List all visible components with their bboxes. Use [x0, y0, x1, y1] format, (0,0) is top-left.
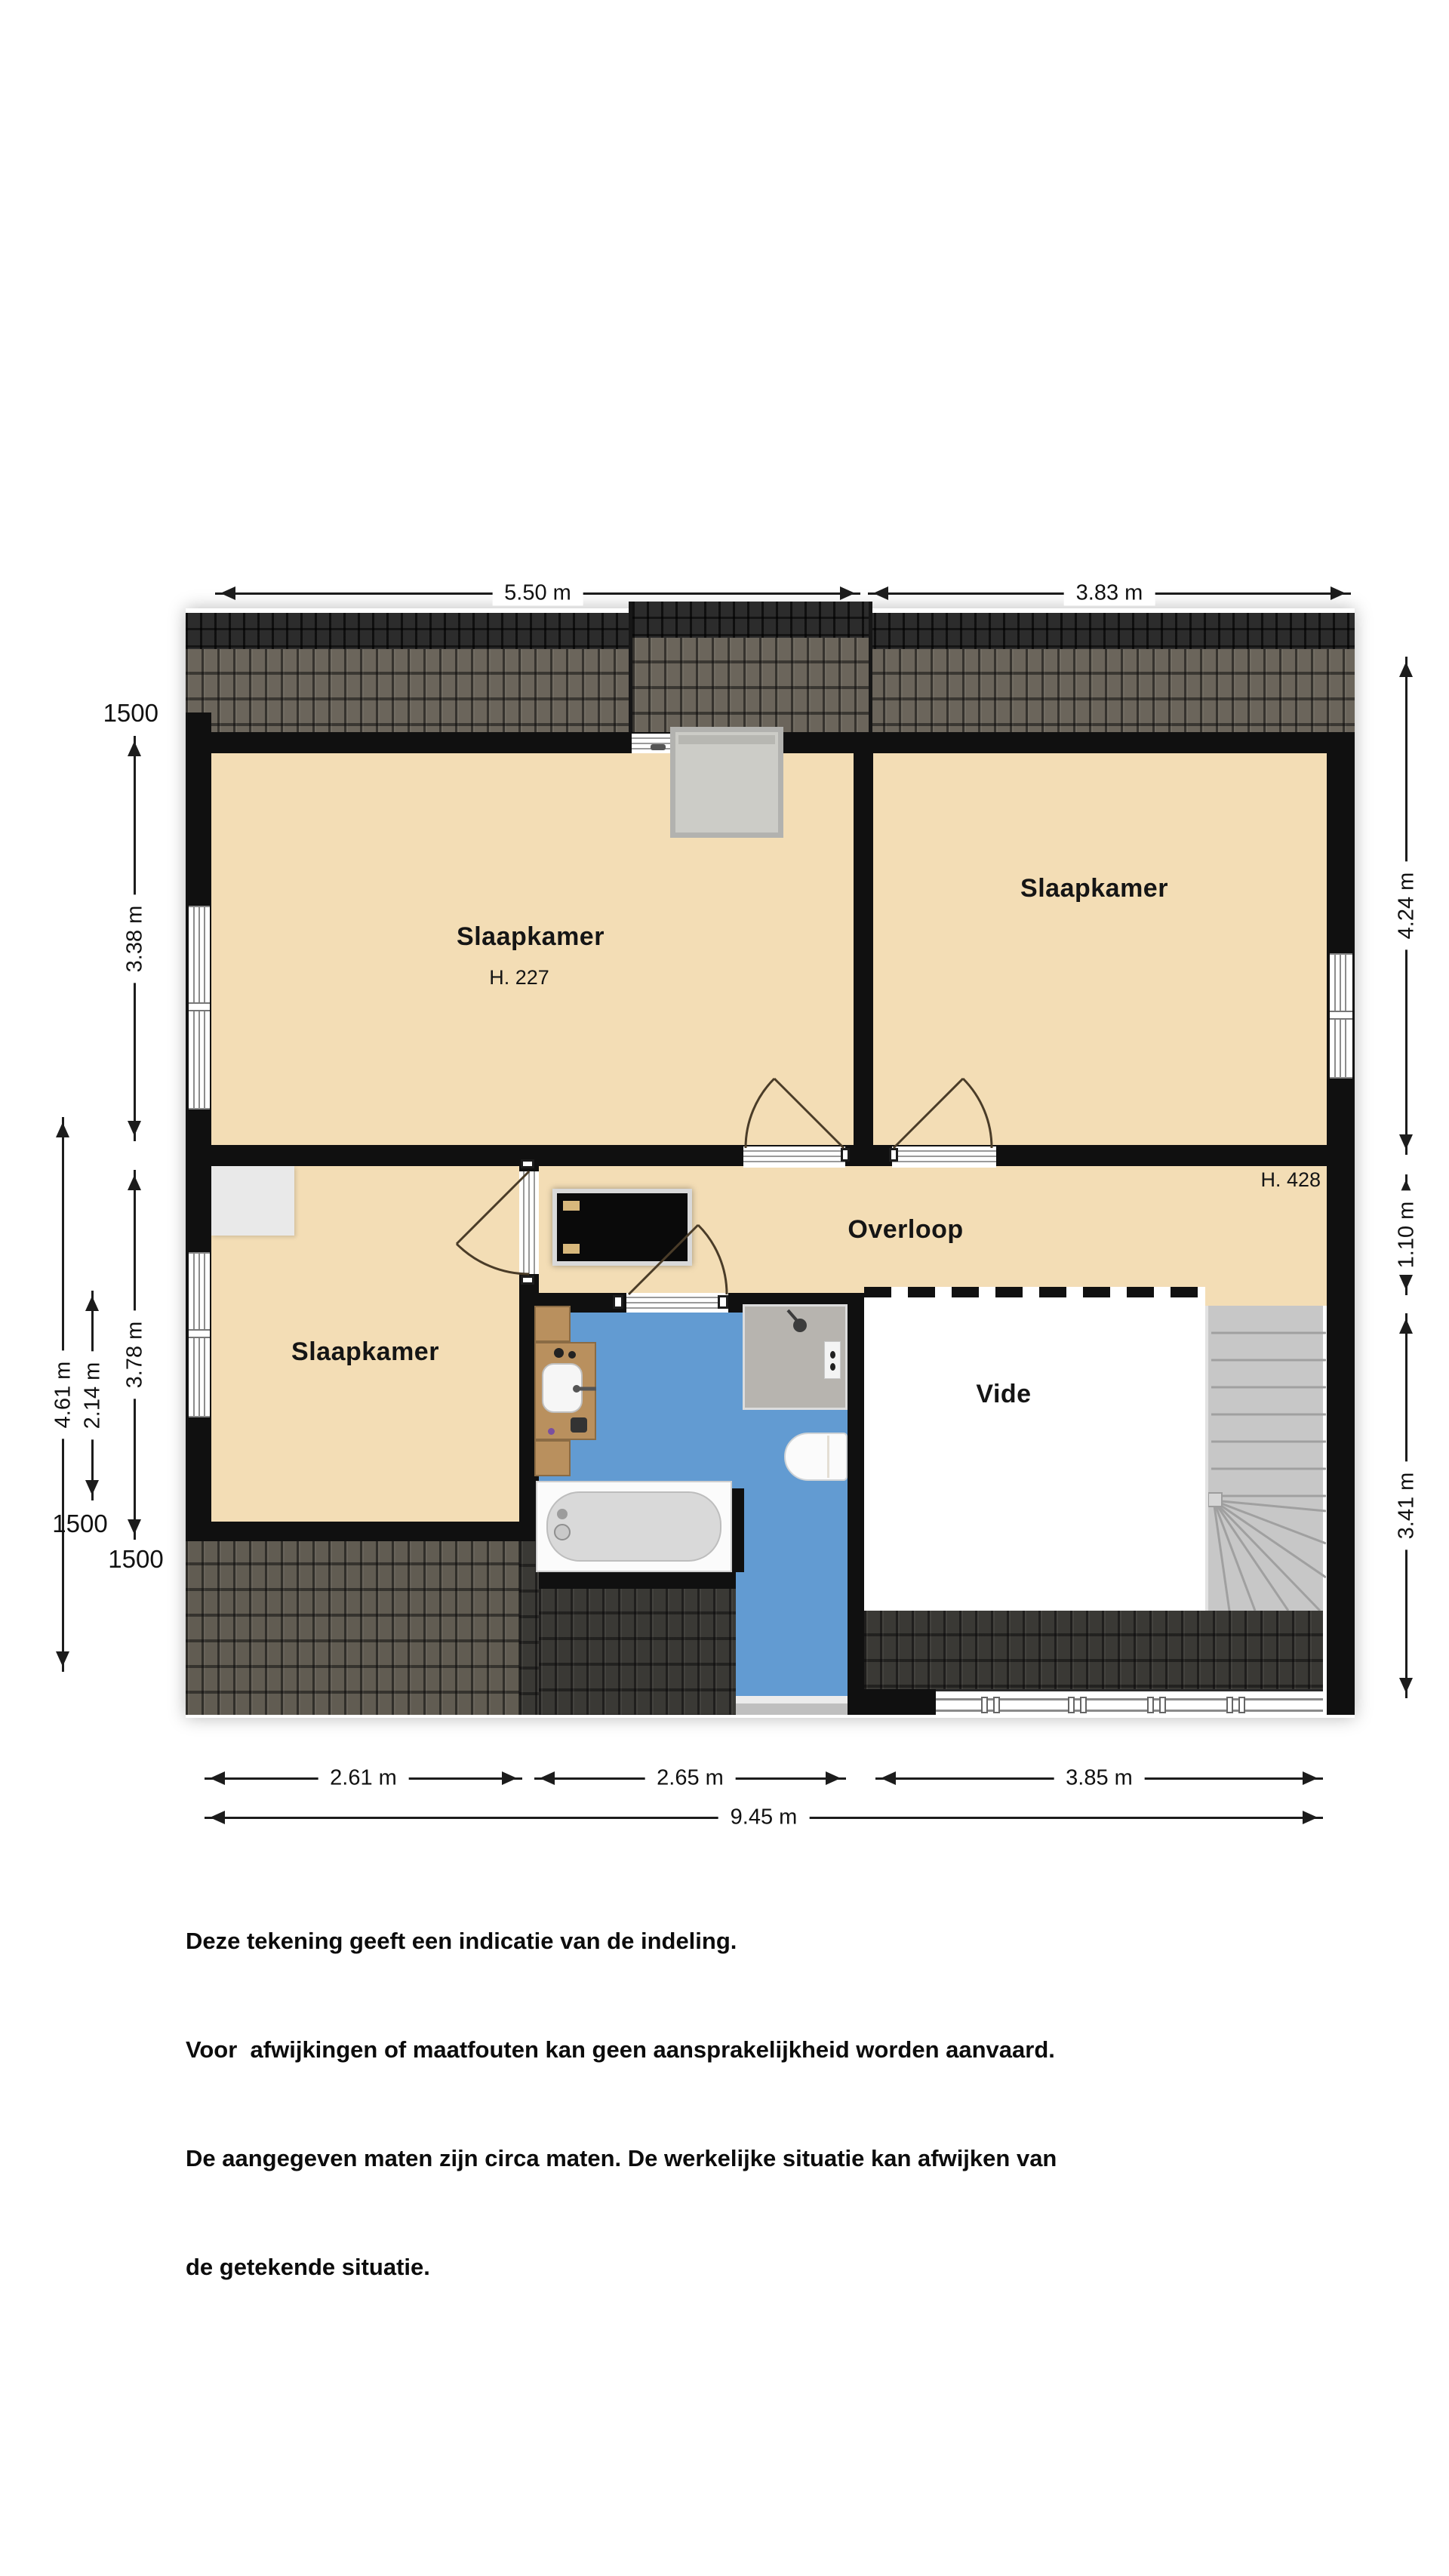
window-mullion [1226, 1697, 1233, 1713]
window-bedroom-tl [189, 906, 210, 1109]
dim-left-461: 4.61 m [62, 1117, 64, 1672]
label-landing: Overloop [736, 1215, 1075, 1245]
window-void-south [936, 1689, 1323, 1716]
staircase-treads [1208, 1306, 1326, 1611]
dim-bottom-total: 9.45 m [205, 1817, 1323, 1819]
wardrobe-cupboard [552, 1189, 692, 1266]
cupboard-handle [563, 1201, 580, 1211]
toilet [784, 1433, 848, 1481]
dim-top-right: 3.83 m [868, 592, 1351, 595]
roof-tiles-bottom-left [186, 1540, 539, 1715]
vanity-accessory [571, 1417, 587, 1433]
wall-bathroom-east [848, 1293, 864, 1715]
shower [743, 1304, 848, 1410]
window-mullion [993, 1697, 1000, 1713]
dim-right-middle: 1.10 m [1405, 1174, 1407, 1295]
door-post [521, 1159, 534, 1168]
disclaimer-line-2: Voor afwijkingen of maatfouten kan geen … [186, 2032, 1057, 2068]
door-threshold-bathroom [626, 1293, 728, 1313]
disclaimer-line-4: de getekende situatie. [186, 2249, 1057, 2285]
dim-bottom-1: 2.61 m [205, 1777, 522, 1780]
label-landing-height: H. 428 [1132, 1168, 1321, 1192]
bathtub [536, 1481, 732, 1572]
dim-bottom-3: 3.85 m [875, 1777, 1323, 1780]
label-bedroom-top-right: Slaapkamer [924, 874, 1264, 903]
toilet-seam [827, 1436, 829, 1478]
floorplan-canvas: Slaapkamer H. 227 Slaapkamer Slaapkamer … [0, 0, 1449, 2576]
disclaimer-text: Deze tekening geeft een indicatie van de… [186, 1851, 1057, 2358]
shower-control-knob [830, 1363, 835, 1371]
marker-1500-b: 1500 [91, 1545, 181, 1574]
label-bedroom-bottom-left: Slaapkamer [195, 1337, 535, 1367]
vanity-accessory [568, 1351, 576, 1359]
window-bedroom-bl [189, 1252, 210, 1417]
door-threshold-bedroom-tr [892, 1146, 996, 1168]
wall-bedroom-bl-south [186, 1522, 539, 1541]
wall-right [1327, 732, 1355, 1715]
wall-tub-stub [731, 1488, 744, 1572]
dim-top-left: 5.50 m [215, 592, 860, 595]
window-transom [1330, 1011, 1352, 1020]
sink [542, 1363, 583, 1413]
void-dashed-edge [864, 1287, 1205, 1297]
marker-1500-a: 1500 [35, 1510, 125, 1538]
door-post [841, 1148, 850, 1162]
roof-tiles-bottom-mid [539, 1589, 736, 1715]
window-bedroom-tr [1330, 953, 1352, 1079]
closet-recess [211, 1166, 294, 1236]
window-dormer-strip [632, 734, 670, 753]
window-mullion [1147, 1697, 1154, 1713]
dim-bottom-2: 2.65 m [534, 1777, 846, 1780]
skylight-handle [651, 744, 666, 750]
vanity-counter-top [534, 1306, 571, 1342]
window-mullion [1159, 1697, 1166, 1713]
door-threshold-bedroom-bl [519, 1171, 539, 1274]
dim-right-upper: 4.24 m [1405, 657, 1407, 1155]
dim-left-378: 3.78 m [134, 1170, 136, 1540]
skylight-frame-bar [678, 735, 775, 744]
disclaimer-line-1: Deze tekening geeft een indicatie van de… [186, 1923, 1057, 1959]
window-mullion [1068, 1697, 1075, 1713]
room-bedroom-top-right [873, 753, 1327, 1146]
label-void: Vide [834, 1380, 1174, 1409]
door-post [889, 1148, 898, 1162]
window-transom [189, 1002, 210, 1011]
vanity-accessory [548, 1428, 555, 1435]
cupboard-handle [563, 1244, 580, 1254]
door-post [613, 1295, 623, 1309]
dim-right-lower: 3.41 m [1405, 1313, 1407, 1698]
shower-control-panel [824, 1341, 841, 1379]
wall-bottom-chunk [864, 1689, 936, 1715]
label-bedroom-tl-height: H. 227 [361, 966, 678, 989]
door-post [521, 1276, 534, 1285]
window-mullion [981, 1697, 988, 1713]
vanity-counter-bottom [534, 1440, 571, 1476]
shower-control-knob [830, 1351, 835, 1359]
room-void [864, 1287, 1205, 1611]
bathroom-dormer-floor [736, 1572, 848, 1696]
roof-tiles-bottom-right [864, 1611, 1323, 1691]
door-post [718, 1295, 728, 1309]
label-bedroom-top-left: Slaapkamer [361, 922, 700, 952]
bathroom-dormer-window-sill [736, 1696, 848, 1715]
vanity-accessory [554, 1348, 564, 1358]
disclaimer-line-3: De aangegeven maten zijn circa maten. De… [186, 2141, 1057, 2177]
marker-1500-top: 1500 [75, 699, 158, 728]
dim-left-214: 2.14 m [91, 1291, 94, 1500]
dormer-roof-ridge [629, 602, 872, 638]
staircase [1205, 1306, 1323, 1611]
window-mullion [1080, 1697, 1087, 1713]
wall-between-bedrooms [854, 753, 873, 1146]
dormer-roof-tiles [629, 638, 872, 734]
door-threshold-bedroom-tl [743, 1146, 845, 1168]
dormer-skylight [670, 727, 783, 838]
dim-left-338: 3.38 m [134, 736, 136, 1141]
bathtub-basin [546, 1491, 721, 1562]
wall-bathroom-south [539, 1572, 736, 1589]
window-mullion [1238, 1697, 1245, 1713]
